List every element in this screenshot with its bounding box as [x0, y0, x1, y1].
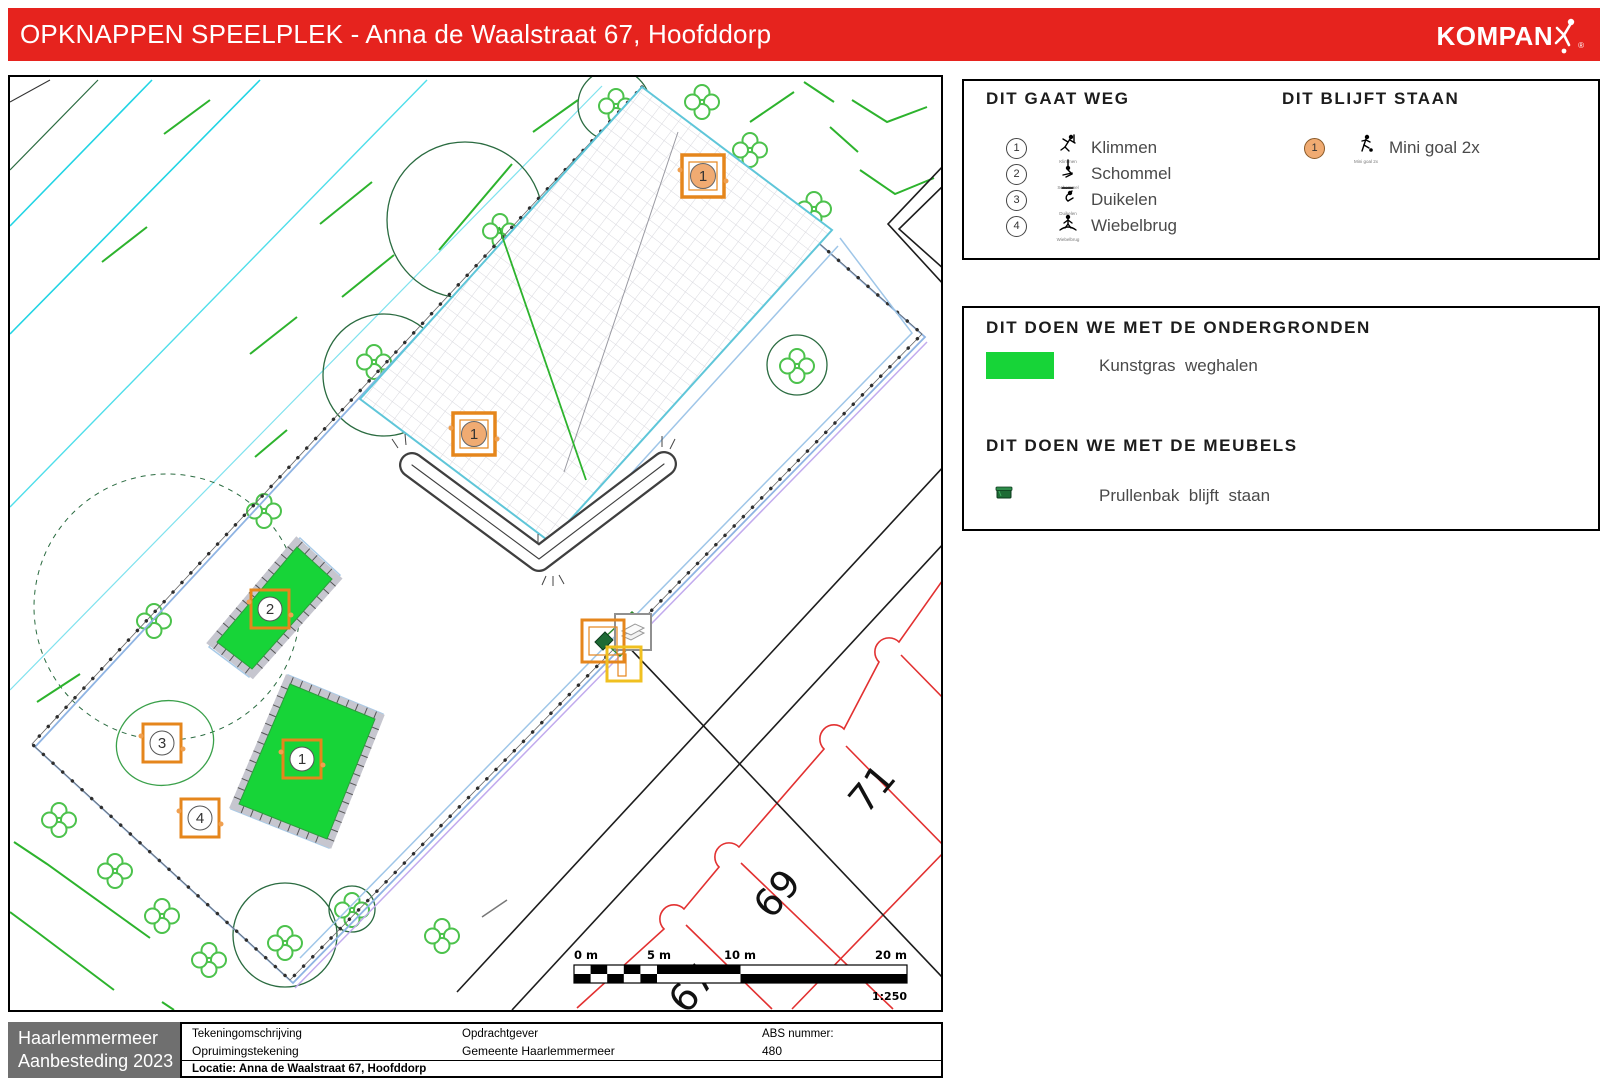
- legend-item-wiebelbrug: 4 Wiebelbrug Wiebelbrug: [1006, 213, 1177, 239]
- kunstgras-label: Kunstgras weghalen: [1099, 356, 1258, 376]
- scale-label-5: 5 m: [647, 948, 671, 962]
- legend-item-klimmen: 1 Klimmen Klimmen: [1006, 135, 1157, 161]
- house-number-71: 71: [840, 756, 905, 821]
- org-box: Haarlemmermeer Aanbesteding 2023: [8, 1022, 180, 1078]
- svg-text:2: 2: [266, 601, 274, 618]
- org-line-1: Haarlemmermeer: [18, 1027, 180, 1050]
- wobble-bridge-figure-icon: Wiebelbrug: [1055, 211, 1081, 242]
- legend-label: Wiebelbrug: [1091, 216, 1177, 236]
- page-title: OPKNAPPEN SPEELPLEK - Anna de Waalstraat…: [20, 8, 771, 61]
- trash-bin-icon: [994, 484, 1016, 506]
- marker-removed-3: 3: [139, 724, 186, 762]
- legend-number-2: 2: [1006, 164, 1027, 185]
- svg-text:1: 1: [470, 426, 478, 443]
- legend-label: Mini goal 2x: [1389, 138, 1480, 158]
- prullenbak-label: Prullenbak blijft staan: [1099, 486, 1270, 506]
- abs-nummer-value: 480: [762, 1044, 782, 1058]
- abs-nummer-label: ABS nummer:: [762, 1028, 834, 1040]
- site-plan-frame: 71 69 67 1 1: [8, 75, 943, 1012]
- marker-removed-4: 4: [177, 799, 224, 837]
- legend-label: Schommel: [1091, 164, 1171, 184]
- tekening-value: Opruimingstekening: [192, 1044, 299, 1058]
- marker-kept-1: 1: [678, 155, 729, 197]
- opdrachtgever-value: Gemeente Haarlemmermeer: [462, 1044, 615, 1058]
- legend-label: Duikelen: [1091, 190, 1157, 210]
- svg-text:1: 1: [699, 168, 707, 185]
- furniture-title: DIT DOEN WE MET DE MEUBELS: [986, 436, 1298, 456]
- registered-mark: ®: [1578, 41, 1584, 50]
- legend-number-4: 4: [1006, 216, 1027, 237]
- legend-number-3: 3: [1006, 190, 1027, 211]
- locatie-line: Locatie: Anna de Waalstraat 67, Hoofddor…: [182, 1060, 941, 1075]
- kompan-logo: KOMPAN ®: [1436, 18, 1584, 54]
- football-figure-icon: Mini goal 2x: [1353, 133, 1379, 164]
- legend-number-1: 1: [1006, 138, 1027, 159]
- scale-label-10: 10 m: [724, 948, 756, 962]
- title-bar: OPKNAPPEN SPEELPLEK - Anna de Waalstraat…: [8, 8, 1600, 61]
- legend-removed-title: DIT GAAT WEG: [986, 89, 1130, 109]
- legend-panel: DIT GAAT WEG DIT BLIJFT STAAN 1 Klimmen …: [962, 79, 1600, 260]
- marker-kept-2: 1: [449, 413, 500, 455]
- kompan-jumping-figure-icon: [1553, 18, 1577, 54]
- surfaces-title: DIT DOEN WE MET DE ONDERGRONDEN: [986, 318, 1371, 338]
- scale-ratio: 1:250: [872, 990, 907, 1003]
- kompan-logo-text: KOMPAN: [1436, 21, 1553, 52]
- scale-label-0: 0 m: [574, 948, 598, 962]
- legend-item-duikelen: 3 Duikelen Duikelen: [1006, 187, 1157, 213]
- svg-text:3: 3: [158, 735, 166, 752]
- svg-text:4: 4: [196, 810, 204, 827]
- legend-item-schommel: 2 Schommel Schommel: [1006, 161, 1171, 187]
- scale-bar: 0 m 5 m 10 m 20 m 1:250: [574, 948, 907, 1003]
- tekening-label: Tekeningomschrijving: [192, 1028, 302, 1040]
- house-number-69: 69: [745, 861, 810, 926]
- legend-kept-title: DIT BLIJFT STAAN: [1282, 89, 1459, 109]
- legend-item-minigoal: 1 Mini goal 2x Mini goal 2x: [1304, 135, 1480, 161]
- site-plan-drawing: 71 69 67 1 1: [10, 77, 941, 1010]
- legend-label: Klimmen: [1091, 138, 1157, 158]
- opdrachtgever-label: Opdrachtgever: [462, 1028, 538, 1040]
- legend-kept-number-1: 1: [1304, 138, 1325, 159]
- title-block: Tekeningomschrijving Opruimingstekening …: [180, 1022, 943, 1078]
- surfaces-panel: DIT DOEN WE MET DE ONDERGRONDEN Kunstgra…: [962, 306, 1600, 531]
- svg-text:1: 1: [298, 751, 306, 768]
- kunstgras-swatch: [986, 352, 1054, 379]
- edge-lines: [10, 80, 98, 170]
- org-line-2: Aanbesteding 2023: [18, 1050, 180, 1073]
- scale-label-20: 20 m: [875, 948, 907, 962]
